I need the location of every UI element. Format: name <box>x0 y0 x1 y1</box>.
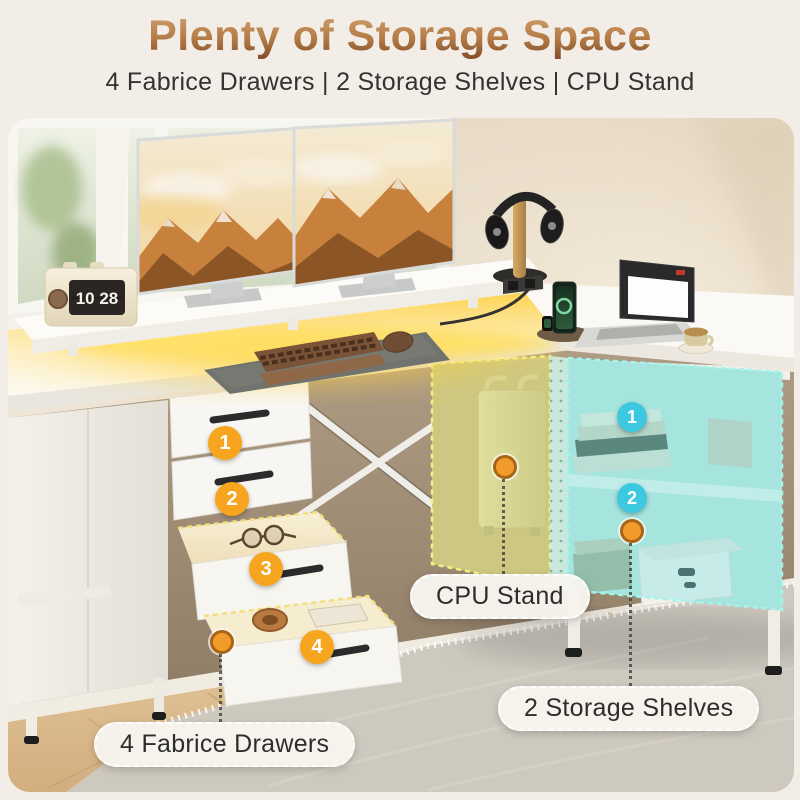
page-title: Plenty of Storage Space <box>0 12 800 61</box>
cpu-leader-line <box>502 479 505 574</box>
shelf-badge-1: 1 <box>617 402 647 432</box>
drawer-badge-4: 4 <box>300 630 334 664</box>
drawers-callout-dot <box>210 630 234 654</box>
callout-cpu-stand: CPU Stand <box>410 574 590 619</box>
page-background: Plenty of Storage Space 4 Fabrice Drawer… <box>0 0 800 800</box>
shelf-badge-2: 2 <box>617 483 647 513</box>
shelves-compartment <box>568 358 782 610</box>
clock-time: 10 28 <box>76 289 119 308</box>
cpu-callout-dot <box>493 455 517 479</box>
drawer-badge-2: 2 <box>215 482 249 516</box>
page-subtitle: 4 Fabrice Drawers | 2 Storage Shelves | … <box>0 68 800 97</box>
cpu-compartment <box>432 356 550 588</box>
drawers-leader-line <box>219 654 222 722</box>
callout-fabric-drawers: 4 Fabrice Drawers <box>94 722 355 767</box>
product-photo: 10 28 <box>8 118 794 792</box>
shelves-callout-dot <box>620 519 644 543</box>
callout-storage-shelves: 2 Storage Shelves <box>498 686 759 731</box>
flip-clock: 10 28 <box>45 262 137 326</box>
shelves-leader-line <box>629 543 632 686</box>
drawer-badge-1: 1 <box>208 426 242 460</box>
storage-unit <box>428 354 794 675</box>
left-monitor-screen <box>123 124 306 298</box>
drawer-badge-3: 3 <box>249 552 283 586</box>
